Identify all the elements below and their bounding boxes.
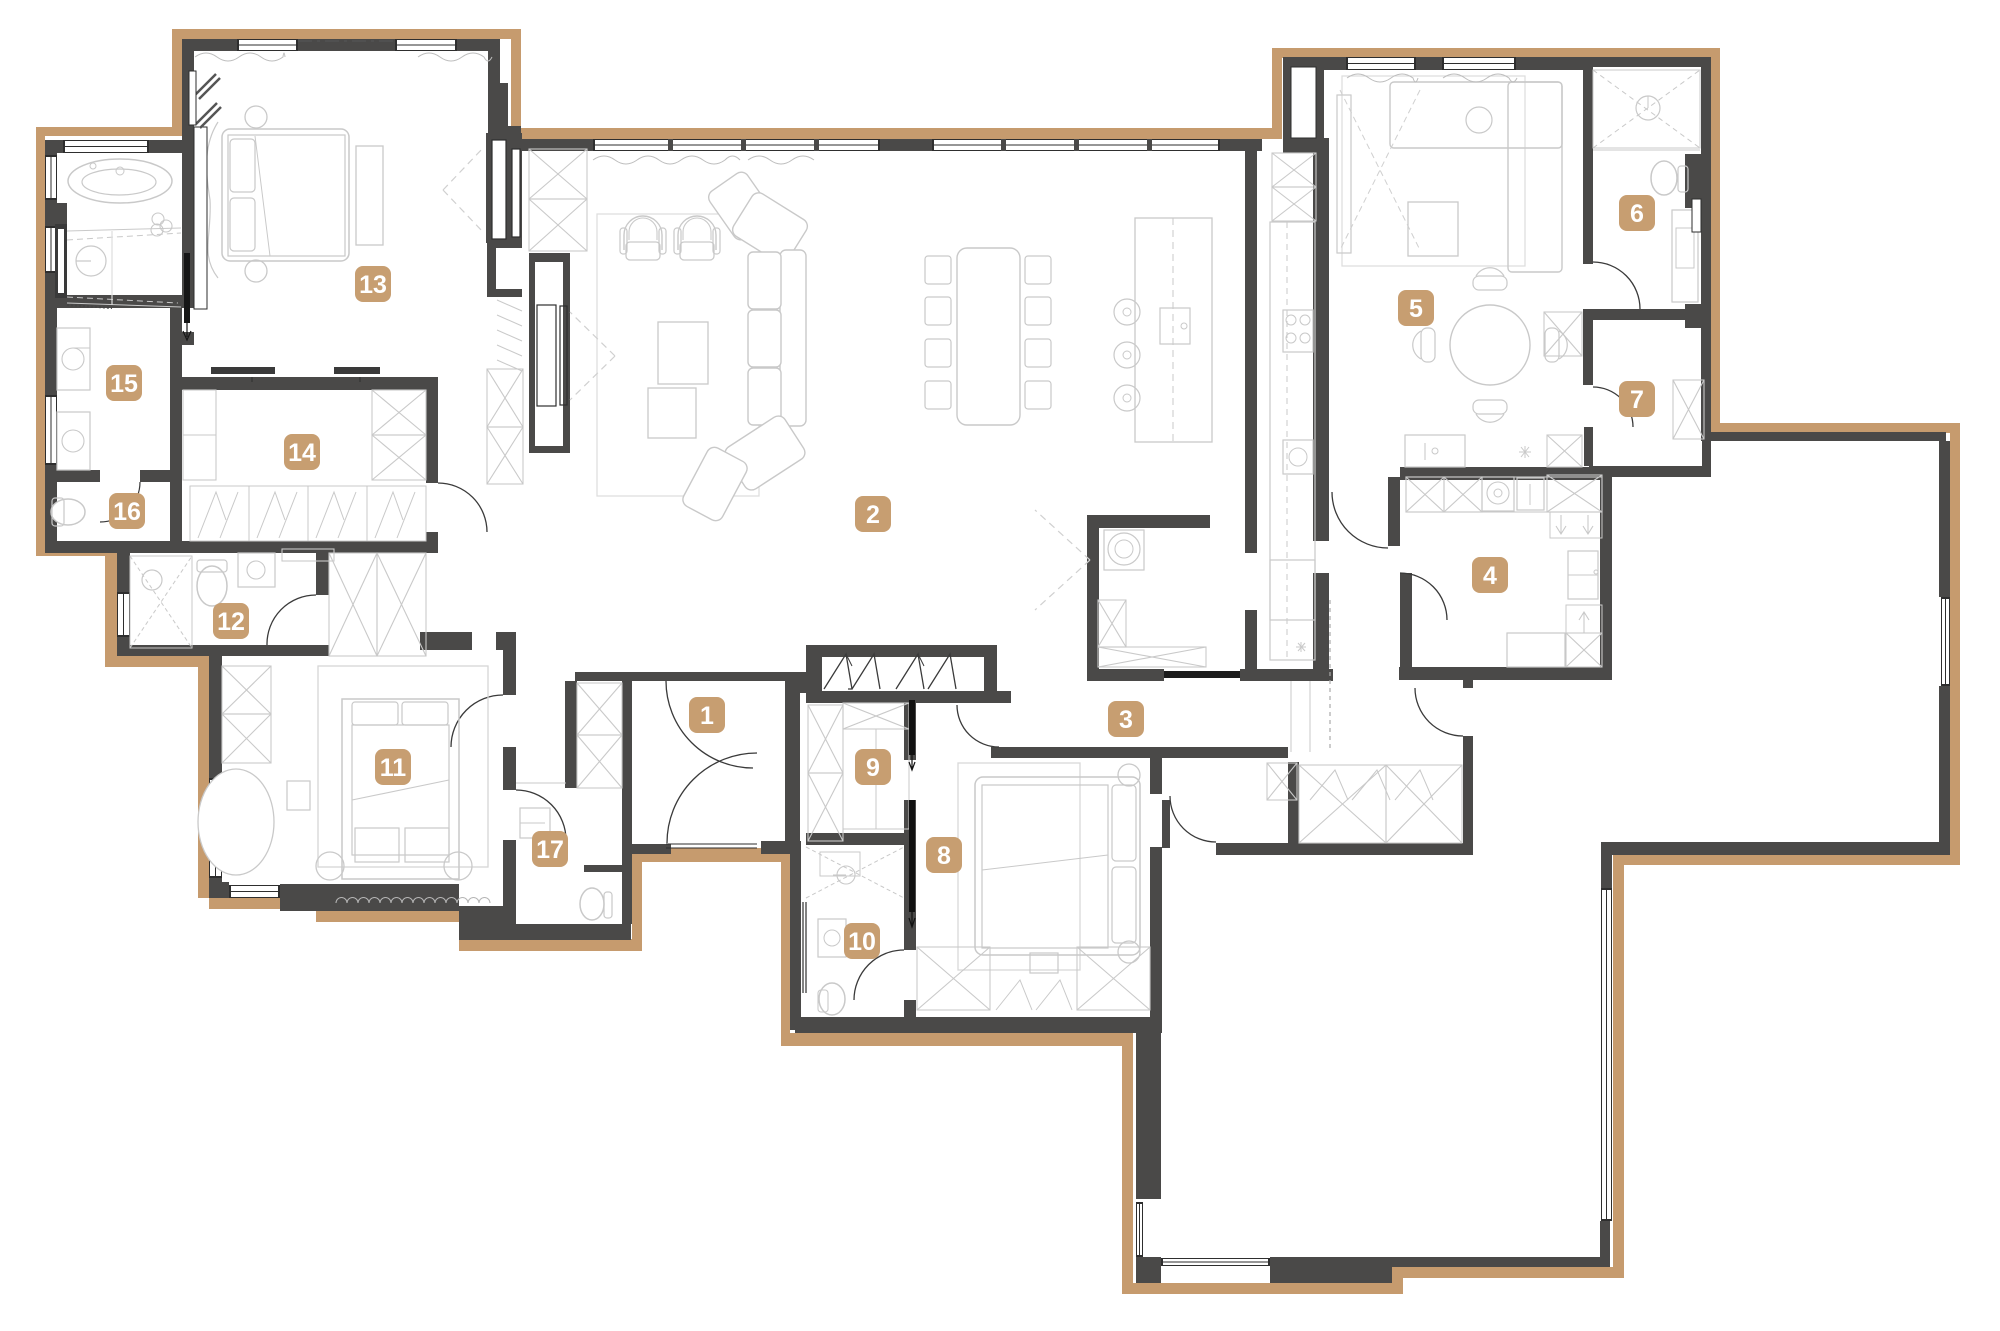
- svg-text:10: 10: [848, 928, 876, 956]
- svg-text:7: 7: [1630, 386, 1644, 414]
- svg-text:14: 14: [288, 439, 316, 467]
- svg-text:5: 5: [1409, 295, 1423, 323]
- svg-text:2: 2: [866, 501, 880, 529]
- svg-text:13: 13: [359, 271, 387, 299]
- svg-text:16: 16: [113, 498, 141, 526]
- svg-text:12: 12: [217, 608, 245, 636]
- svg-text:1: 1: [700, 702, 714, 730]
- svg-text:17: 17: [536, 836, 564, 864]
- svg-text:11: 11: [380, 754, 407, 782]
- svg-text:8: 8: [937, 842, 951, 870]
- svg-text:4: 4: [1483, 562, 1497, 590]
- svg-text:9: 9: [866, 754, 880, 782]
- svg-text:15: 15: [110, 370, 138, 398]
- svg-text:6: 6: [1630, 200, 1644, 228]
- svg-text:3: 3: [1119, 706, 1133, 734]
